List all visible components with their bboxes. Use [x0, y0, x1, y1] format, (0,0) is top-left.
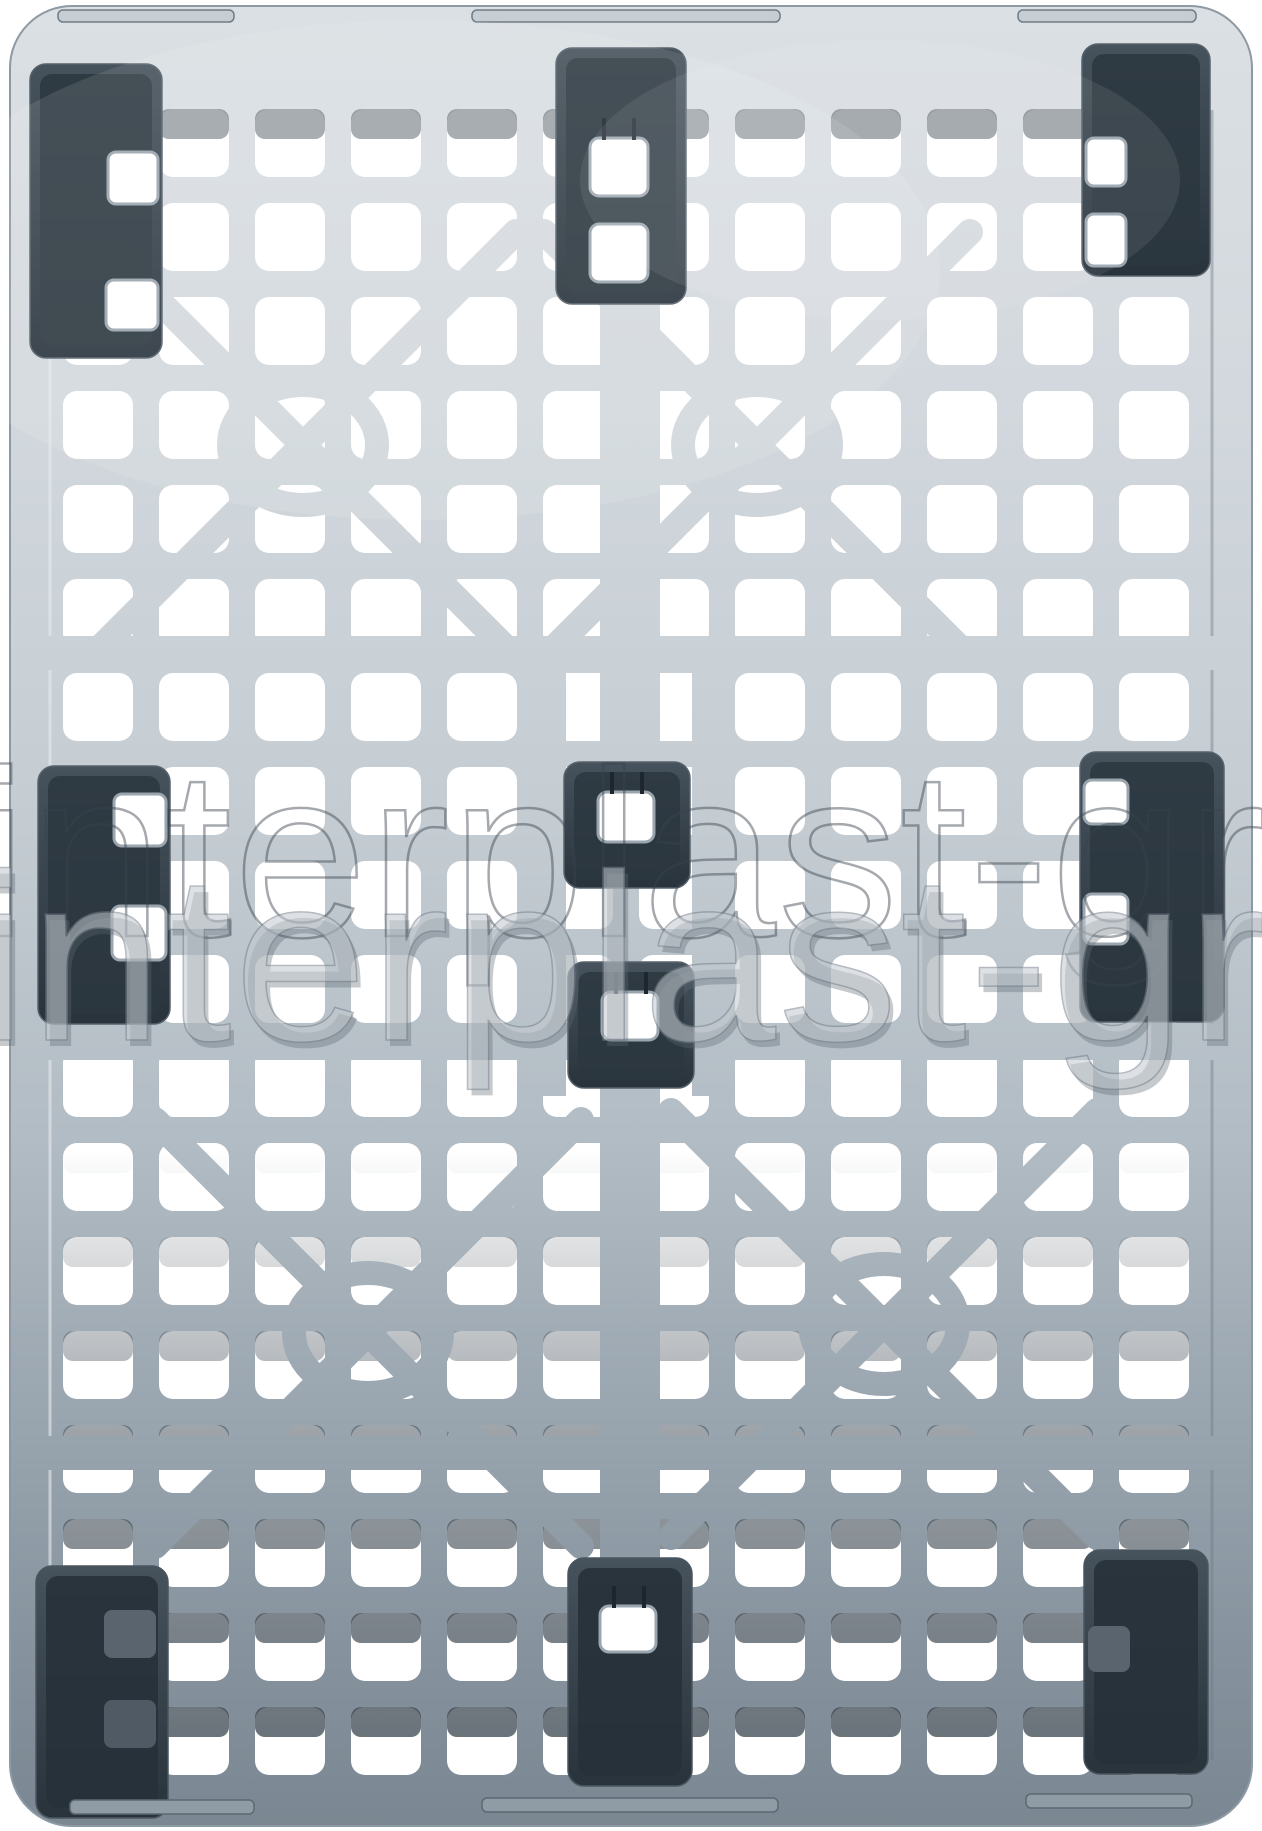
foot-bottom-left	[36, 1566, 168, 1818]
edge-tab-bottom-left	[70, 1800, 254, 1814]
edge-tab-top-left	[58, 10, 234, 22]
edge-tab-top-center	[472, 10, 780, 22]
foot-bottom-right	[1084, 1550, 1208, 1774]
watermark: interplast-gro interplast-gro interplast…	[0, 722, 1262, 1097]
foot-bottom-middle	[568, 1558, 692, 1786]
edge-tab-bottom-right	[1026, 1794, 1192, 1808]
edge-tab-bottom-center	[482, 1798, 778, 1812]
edge-tab-top-right	[1018, 10, 1196, 22]
product-photo: interplast-gro interplast-gro interplast…	[0, 0, 1262, 1831]
watermark-text: interplast-gro	[0, 826, 1262, 1091]
pallet-illustration: interplast-gro interplast-gro interplast…	[0, 0, 1262, 1831]
